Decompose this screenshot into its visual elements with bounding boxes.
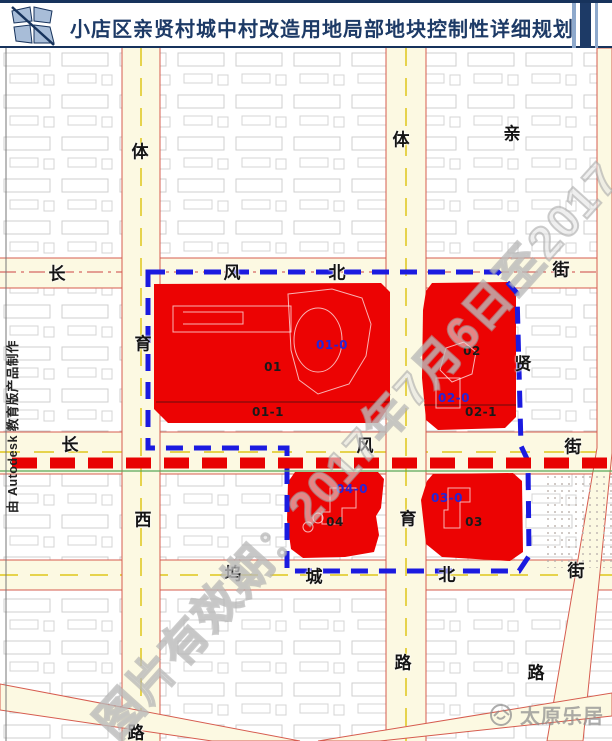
planning-map-page: 小店区亲贤村城中村改造用地局部地块控制性详细规划: [0, 0, 612, 741]
street-label: 长: [62, 431, 79, 456]
street-label: 路: [395, 649, 412, 674]
street-label: 街: [568, 557, 585, 582]
header-stripe: [595, 3, 598, 49]
street-label: 北: [329, 259, 346, 284]
plot-label: 03: [465, 515, 483, 529]
map-art: [0, 48, 612, 741]
street-label: 风: [224, 259, 241, 284]
header-stripe: [572, 3, 576, 49]
site-logo-icon: [488, 702, 514, 728]
plot-label: 02-1: [465, 405, 497, 419]
street-label: 北: [439, 561, 456, 586]
street-label: 城: [306, 563, 323, 588]
site-watermark: 太原乐居: [488, 700, 604, 729]
street-label: 体: [132, 138, 149, 163]
site-name: 太原乐居: [520, 700, 604, 729]
plot-label: 01-0: [316, 338, 348, 352]
street-label: 体: [393, 126, 410, 151]
map-tiles-logo-icon: [8, 5, 58, 47]
street-label: 育: [400, 505, 417, 530]
street-label: 亲: [504, 120, 521, 145]
street-label: 长: [49, 260, 66, 285]
street-label: 育: [135, 330, 152, 355]
plot-label: 01: [264, 360, 282, 374]
page-title: 小店区亲贤村城中村改造用地局部地块控制性详细规划: [70, 13, 570, 42]
map-canvas: 体育西路体育路亲贤长风北街长风街坞城北街路 01-00101-10202-002…: [0, 48, 612, 741]
autodesk-credit: 由 Autodesk 教育版产品制作: [2, 340, 21, 513]
street-label: 街: [565, 433, 582, 458]
street-label: 路: [528, 659, 545, 684]
street-label: 西: [135, 506, 152, 531]
street-label: 贤: [515, 350, 532, 375]
header: 小店区亲贤村城中村改造用地局部地块控制性详细规划: [0, 0, 612, 48]
header-stripe: [580, 3, 591, 49]
plot-label: 01-1: [252, 405, 284, 419]
plot-label: 03-0: [431, 491, 463, 505]
stippled-area: [545, 476, 612, 568]
